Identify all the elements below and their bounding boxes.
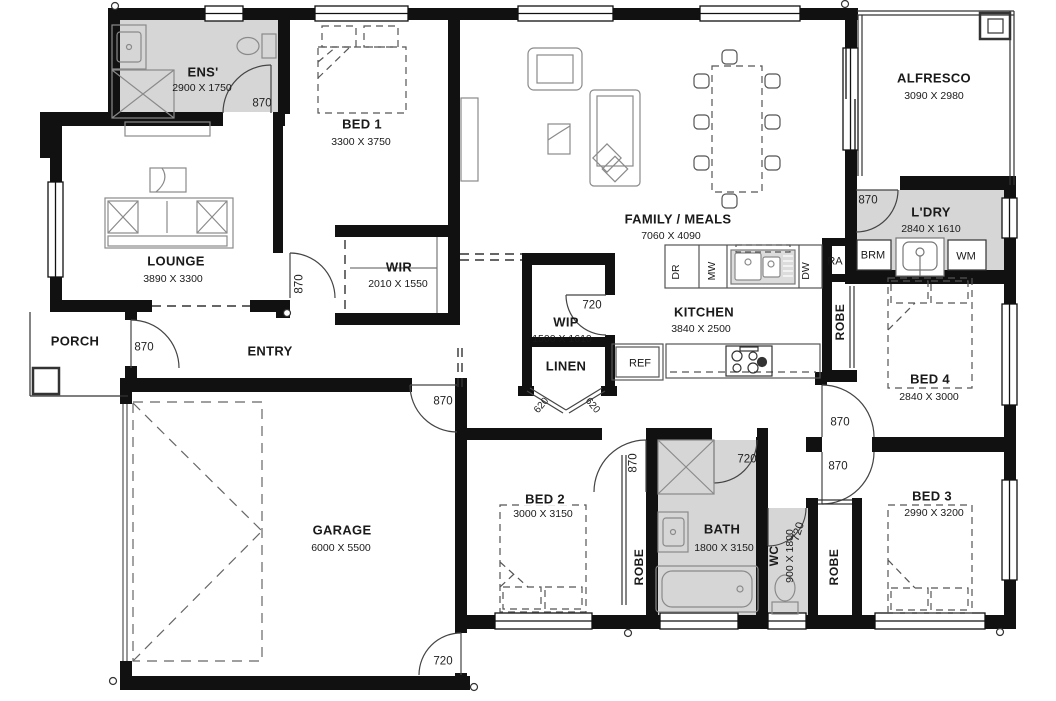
window-lounge-west bbox=[48, 182, 63, 277]
room-label-lounge: LOUNGE bbox=[147, 255, 204, 268]
family-armchair bbox=[528, 48, 582, 90]
kitchen-island bbox=[666, 344, 820, 378]
door-size-bed2: 870 bbox=[628, 453, 640, 472]
window-bed4-east bbox=[1002, 304, 1017, 405]
room-label-ldry: L'DRY bbox=[911, 206, 951, 219]
room-label-wc: WC bbox=[768, 546, 780, 567]
lounge-sofa bbox=[105, 198, 233, 248]
room-dims-ldry: 2840 X 1610 bbox=[901, 224, 961, 235]
window-top-ens bbox=[205, 6, 243, 21]
fixture-label-dr: DR bbox=[671, 264, 682, 279]
room-label-bed2: BED 2 bbox=[523, 493, 567, 506]
room-label-alfresco: ALFRESCO bbox=[897, 72, 971, 85]
room-label-bath: BATH bbox=[704, 523, 740, 536]
room-dims-kitchen: 3840 X 2500 bbox=[671, 324, 731, 335]
door-garage-rear bbox=[419, 633, 461, 675]
room-label-wip: WIP bbox=[553, 316, 578, 329]
robe-label-bed3: ROBE bbox=[828, 549, 840, 586]
room-dims-wip: 1500 X 1610 bbox=[532, 334, 592, 345]
family-rug bbox=[548, 124, 570, 154]
door-size-garage-int: 870 bbox=[433, 396, 452, 408]
window-top-bed1 bbox=[315, 6, 408, 21]
door-size-bath: 720 bbox=[737, 454, 756, 466]
room-label-bed4: BED 4 bbox=[908, 373, 952, 386]
room-label-ens: ENS' bbox=[187, 66, 218, 79]
room-dims-bed4: 2840 X 3000 bbox=[897, 392, 961, 403]
room-dims-bed1: 3300 X 3750 bbox=[331, 137, 391, 148]
room-dims-ens: 2900 X 1750 bbox=[172, 83, 232, 94]
room-dims-alfresco: 3090 X 2980 bbox=[904, 91, 964, 102]
family-sofa bbox=[590, 90, 640, 186]
door-size-ldry: 870 bbox=[858, 195, 877, 207]
window-ldry-east bbox=[1002, 198, 1017, 238]
floorplan-drawing bbox=[0, 0, 1056, 701]
room-label-linen: LINEN bbox=[546, 360, 587, 373]
room-dims-family: 7060 X 4090 bbox=[641, 231, 701, 242]
room-dims-wir: 2010 X 1550 bbox=[368, 279, 428, 290]
room-label-wir: WIR bbox=[386, 261, 412, 274]
dining-table bbox=[712, 66, 762, 192]
room-dims-bed2: 3000 X 3150 bbox=[511, 509, 575, 520]
room-dims-bath: 1800 X 3150 bbox=[694, 543, 754, 554]
door-size-lounge: 870 bbox=[294, 274, 306, 293]
fixture-label-mw: MW bbox=[707, 262, 718, 281]
door-size-front: 870 bbox=[134, 342, 153, 354]
ldry-trough bbox=[896, 238, 944, 276]
door-garage-internal bbox=[410, 385, 457, 432]
fixture-label-brm: BRM bbox=[861, 251, 885, 262]
door-bed4 bbox=[822, 385, 874, 437]
sliding-door-alfresco bbox=[843, 48, 858, 150]
garage-door bbox=[123, 402, 262, 661]
lounge-rug bbox=[150, 168, 186, 192]
door-size-bed4: 870 bbox=[830, 417, 849, 429]
bed2 bbox=[500, 505, 586, 612]
floor-plan: ENS' 2900 X 1750 BED 1 3300 X 3750 FAMIL… bbox=[0, 0, 1056, 701]
room-label-bed3: BED 3 bbox=[910, 490, 954, 503]
room-label-garage: GARAGE bbox=[313, 524, 372, 537]
window-wc-south bbox=[768, 613, 806, 629]
window-bed2-south bbox=[495, 613, 592, 629]
door-size-garage-rear: 720 bbox=[433, 656, 452, 668]
door-size-wip: 720 bbox=[582, 300, 601, 312]
door-size-bed3: 870 bbox=[828, 461, 847, 473]
fixture-label-wm: WM bbox=[956, 252, 976, 263]
window-bath-south bbox=[660, 613, 738, 629]
bed3 bbox=[888, 505, 972, 613]
window-top-family-1 bbox=[518, 6, 613, 21]
door-size-ens: 870 bbox=[252, 98, 271, 110]
window-bed3-south bbox=[875, 613, 985, 629]
wir-shelves bbox=[350, 237, 437, 313]
porch-outline bbox=[30, 312, 128, 396]
window-top-family-2 bbox=[700, 6, 800, 21]
bed1 bbox=[318, 26, 406, 113]
fixture-label-ref: REF bbox=[629, 359, 651, 370]
room-label-entry: ENTRY bbox=[247, 345, 292, 358]
kitchen-sink bbox=[731, 245, 795, 284]
robe-label-bed4: ROBE bbox=[834, 304, 846, 341]
room-label-porch: PORCH bbox=[51, 335, 99, 348]
room-label-bed1: BED 1 bbox=[342, 118, 382, 131]
dining-chairs bbox=[694, 50, 780, 208]
room-label-kitchen: KITCHEN bbox=[674, 306, 734, 319]
window-bed3-east bbox=[1002, 480, 1017, 580]
robe-label-bed2: ROBE bbox=[633, 549, 645, 586]
room-dims-lounge: 3890 X 3300 bbox=[143, 274, 203, 285]
room-dims-garage: 6000 X 5500 bbox=[311, 543, 371, 554]
fixture-label-ra: RA bbox=[827, 257, 842, 268]
family-tv-unit bbox=[461, 98, 478, 181]
room-dims-bed3: 2990 X 3200 bbox=[902, 508, 966, 519]
fixture-label-dw: DW bbox=[801, 262, 812, 280]
room-label-family: FAMILY / MEALS bbox=[625, 213, 732, 226]
